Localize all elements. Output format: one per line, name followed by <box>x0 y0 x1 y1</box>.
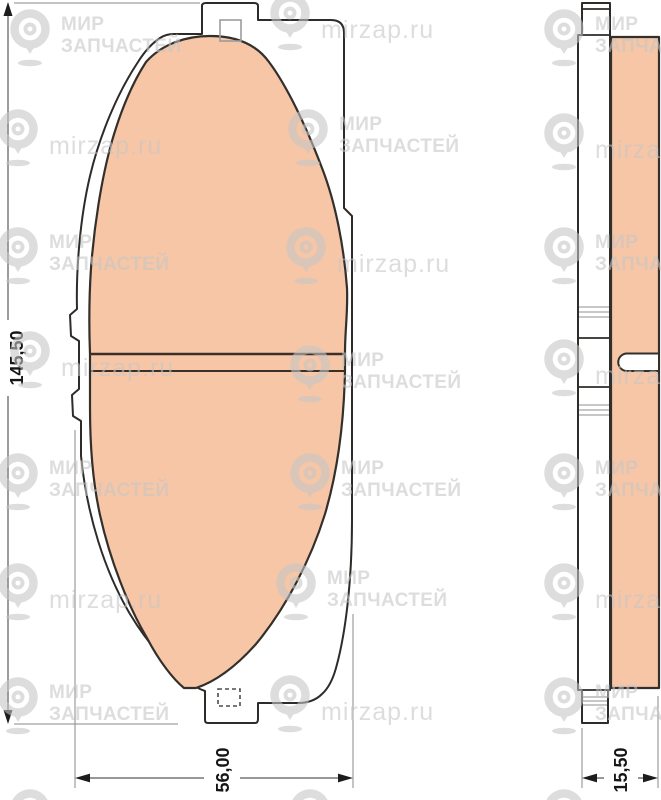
backing-plate-side-outline <box>578 3 610 723</box>
friction-groove-slot-side <box>618 354 659 372</box>
dimension-height-label: 145,50 <box>7 330 27 385</box>
dimension-thickness-label: 15,50 <box>611 747 631 792</box>
side-view <box>578 3 659 723</box>
dimension-width-label: 56,00 <box>213 747 233 792</box>
drawing-canvas: 145,50 56,00 15,50 <box>0 0 661 800</box>
front-view <box>70 3 352 723</box>
brake-pad-technical-drawing: 145,50 56,00 15,50 МИРЗАПЧАСТЕЙ mirzap.r… <box>0 0 661 800</box>
